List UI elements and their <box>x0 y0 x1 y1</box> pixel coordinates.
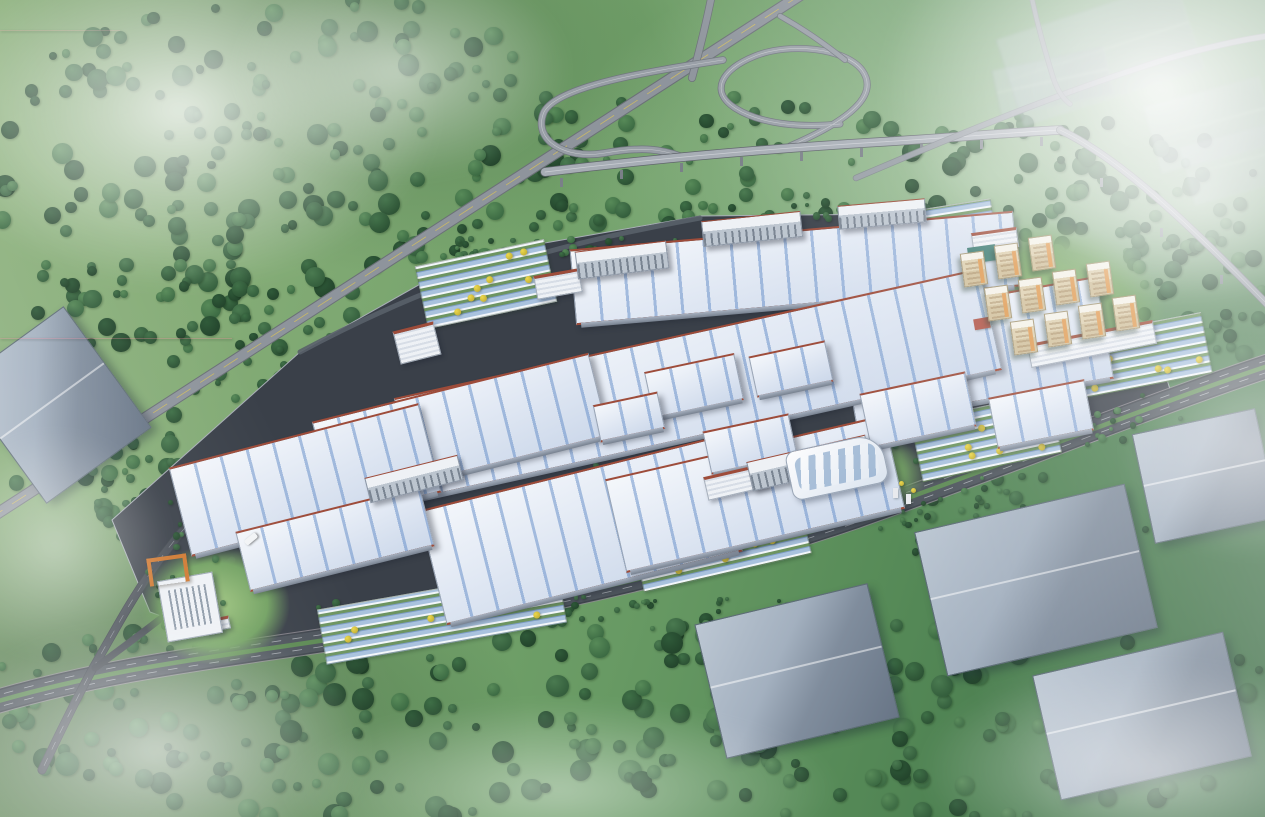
tree <box>1085 442 1090 447</box>
tree <box>725 597 729 601</box>
tree <box>1098 434 1106 442</box>
tree <box>905 522 912 529</box>
gantry-crane <box>146 553 190 586</box>
tree <box>462 241 469 248</box>
gate-pillar-1 <box>893 488 898 498</box>
tree <box>984 503 989 508</box>
residential-tower <box>1010 318 1038 355</box>
tree <box>559 252 565 258</box>
tree <box>1109 427 1113 431</box>
tree <box>997 488 1002 493</box>
gate-flag-1 <box>899 481 904 486</box>
scan-artifact-line-2 <box>0 30 120 31</box>
tree <box>1142 526 1149 533</box>
yellow-tree <box>479 294 487 302</box>
yellow-tree <box>520 248 528 256</box>
tree <box>791 203 797 209</box>
yellow-tree <box>345 636 353 644</box>
tree <box>173 532 181 540</box>
tree <box>958 507 966 515</box>
tree <box>605 238 612 245</box>
tree <box>614 607 620 613</box>
tree <box>457 239 461 243</box>
yellow-tree <box>977 424 985 432</box>
residential-tower <box>1028 234 1056 271</box>
tree <box>878 526 884 532</box>
tree <box>634 603 640 609</box>
tree <box>220 600 226 606</box>
residential-tower <box>960 250 988 287</box>
gate-pillar-2 <box>906 494 911 504</box>
tree <box>974 503 979 508</box>
tree <box>579 616 585 622</box>
tree <box>468 236 473 241</box>
scan-artifact-line-1 <box>0 338 232 339</box>
tree <box>813 212 821 220</box>
yellow-tree <box>466 294 474 302</box>
tree <box>961 488 968 495</box>
yellow-tree <box>524 275 532 283</box>
yellow-tree <box>427 615 435 623</box>
yellow-tree <box>505 252 513 260</box>
tree <box>455 246 459 250</box>
tree <box>650 626 655 631</box>
tree <box>1178 416 1183 421</box>
tree <box>1119 436 1127 444</box>
yellow-tree <box>1164 365 1172 373</box>
yellow-tree <box>351 626 359 634</box>
yellow-tree <box>968 451 976 459</box>
tree <box>921 501 926 506</box>
tree <box>1135 416 1142 423</box>
tree <box>917 509 923 515</box>
tree <box>914 518 918 522</box>
residential-tower <box>994 242 1022 279</box>
yellow-tree <box>1195 356 1203 364</box>
tree <box>825 215 832 222</box>
tree <box>488 238 494 244</box>
tree <box>1114 407 1120 413</box>
residential-tower <box>1086 260 1114 297</box>
tree <box>716 609 720 613</box>
tree <box>1094 411 1101 418</box>
tree <box>212 555 219 562</box>
tree <box>567 236 575 244</box>
tree <box>173 544 179 550</box>
yellow-tree <box>533 611 541 619</box>
residential-tower <box>1078 302 1106 339</box>
residential-tower <box>1018 276 1046 313</box>
tree <box>510 238 515 243</box>
tree <box>653 599 657 603</box>
tree <box>805 203 809 207</box>
stage <box>0 0 1265 817</box>
gate-flag-2 <box>911 488 916 493</box>
tree <box>1130 422 1137 429</box>
residential-tower <box>1052 268 1080 305</box>
tree <box>1110 418 1116 424</box>
tree <box>1140 393 1145 398</box>
yellow-tree <box>1154 365 1162 373</box>
residential-tower <box>1044 310 1072 347</box>
tree <box>938 497 943 502</box>
yellow-tree <box>964 443 972 451</box>
tree <box>619 236 624 241</box>
residential-tower <box>984 284 1012 321</box>
tree <box>598 616 604 622</box>
tree <box>571 602 579 610</box>
tree <box>178 522 182 526</box>
tree <box>1003 489 1009 495</box>
tree <box>981 485 988 492</box>
residential-tower <box>1112 294 1140 331</box>
yellow-tree <box>472 284 480 292</box>
tree <box>924 513 931 520</box>
tree <box>581 595 586 600</box>
tree <box>717 597 722 602</box>
tree <box>641 600 645 604</box>
yellow-tree <box>485 275 493 283</box>
tree <box>980 476 984 480</box>
yellow-tree <box>453 308 461 316</box>
tree <box>168 500 173 505</box>
